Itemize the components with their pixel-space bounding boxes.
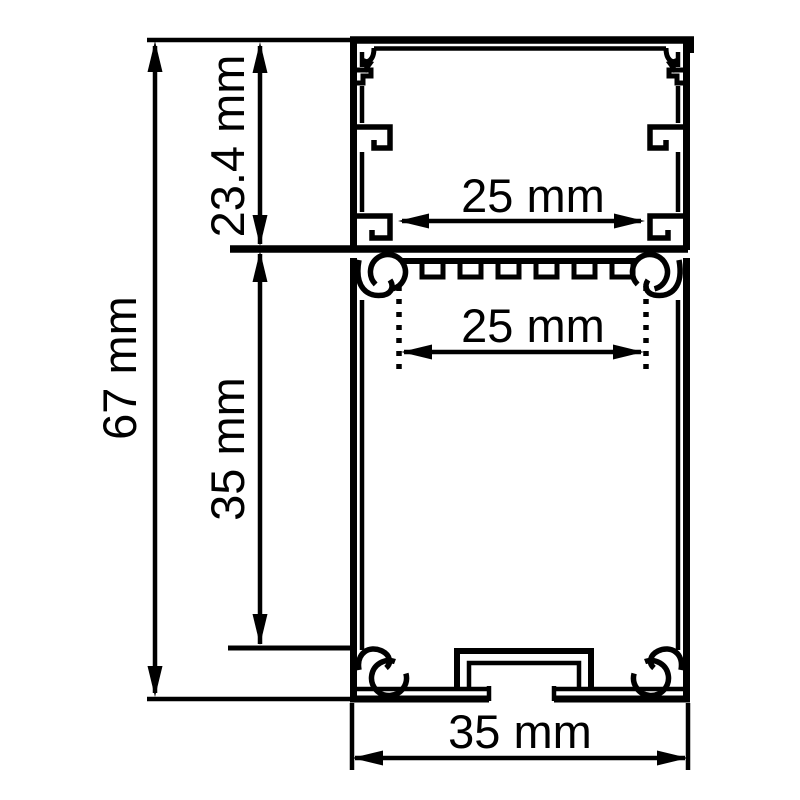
dim-label-upper-cavity-width: 25 mm xyxy=(461,169,605,222)
arrowhead-up xyxy=(253,251,268,282)
dimension-overall-width: 35 mm xyxy=(352,703,688,770)
dim-label-overall-height: 67 mm xyxy=(93,296,146,440)
dimension-lower-section-height: 35 mm xyxy=(201,251,352,648)
arrowhead-left xyxy=(401,345,432,360)
right-upper-gamma-hook xyxy=(650,127,684,148)
left-lower-gamma-hook xyxy=(356,216,390,238)
screw-boss-hook-mid-left xyxy=(358,260,392,295)
arrowhead-up xyxy=(148,41,163,72)
arrowhead-left xyxy=(352,751,383,766)
profile-cross-section-drawing: 67 mm 23.4 mm 35 mm 25 mm xyxy=(0,0,800,800)
dimension-strip-cavity-width: 25 mm xyxy=(399,286,646,376)
dim-label-lower-section-height: 35 mm xyxy=(201,377,254,521)
arrowhead-down xyxy=(253,215,268,246)
left-upper-gamma-hook xyxy=(356,127,390,148)
arrowhead-right xyxy=(657,751,688,766)
arrowhead-down xyxy=(253,614,268,645)
dim-label-upper-section-height: 23.4 mm xyxy=(201,55,254,238)
right-wall-notch xyxy=(669,70,684,83)
dim-label-overall-width: 35 mm xyxy=(448,705,592,758)
right-lower-gamma-hook xyxy=(650,216,684,238)
arrowhead-right xyxy=(613,345,644,360)
arrowhead-left xyxy=(398,214,429,229)
profile-drawing-stage: 67 mm 23.4 mm 35 mm 25 mm xyxy=(0,0,800,800)
left-wall-notch xyxy=(356,70,371,83)
arrowhead-right xyxy=(614,214,645,229)
mounting-channel-outer xyxy=(457,651,591,689)
screw-boss-circle-mid-left xyxy=(370,255,405,289)
screw-boss-circle-mid-right xyxy=(632,255,667,289)
screw-boss-hook-mid-right xyxy=(646,260,680,295)
dimension-upper-section-height: 23.4 mm xyxy=(201,42,268,246)
arrowhead-down xyxy=(148,666,163,697)
arrowhead-up xyxy=(253,42,268,73)
dimension-upper-cavity-width: 25 mm xyxy=(398,169,645,229)
dim-label-strip-cavity-width: 25 mm xyxy=(461,299,605,352)
